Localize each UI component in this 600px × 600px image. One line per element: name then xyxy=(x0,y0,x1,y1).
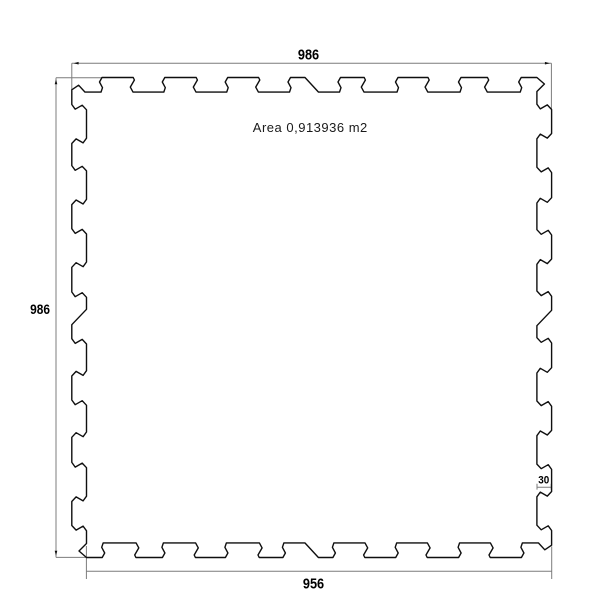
svg-text:Area 0,913936 m2: Area 0,913936 m2 xyxy=(253,120,368,135)
svg-text:30: 30 xyxy=(538,475,549,487)
svg-text:956: 956 xyxy=(303,574,324,591)
svg-text:986: 986 xyxy=(30,301,50,317)
svg-text:986: 986 xyxy=(298,45,319,62)
